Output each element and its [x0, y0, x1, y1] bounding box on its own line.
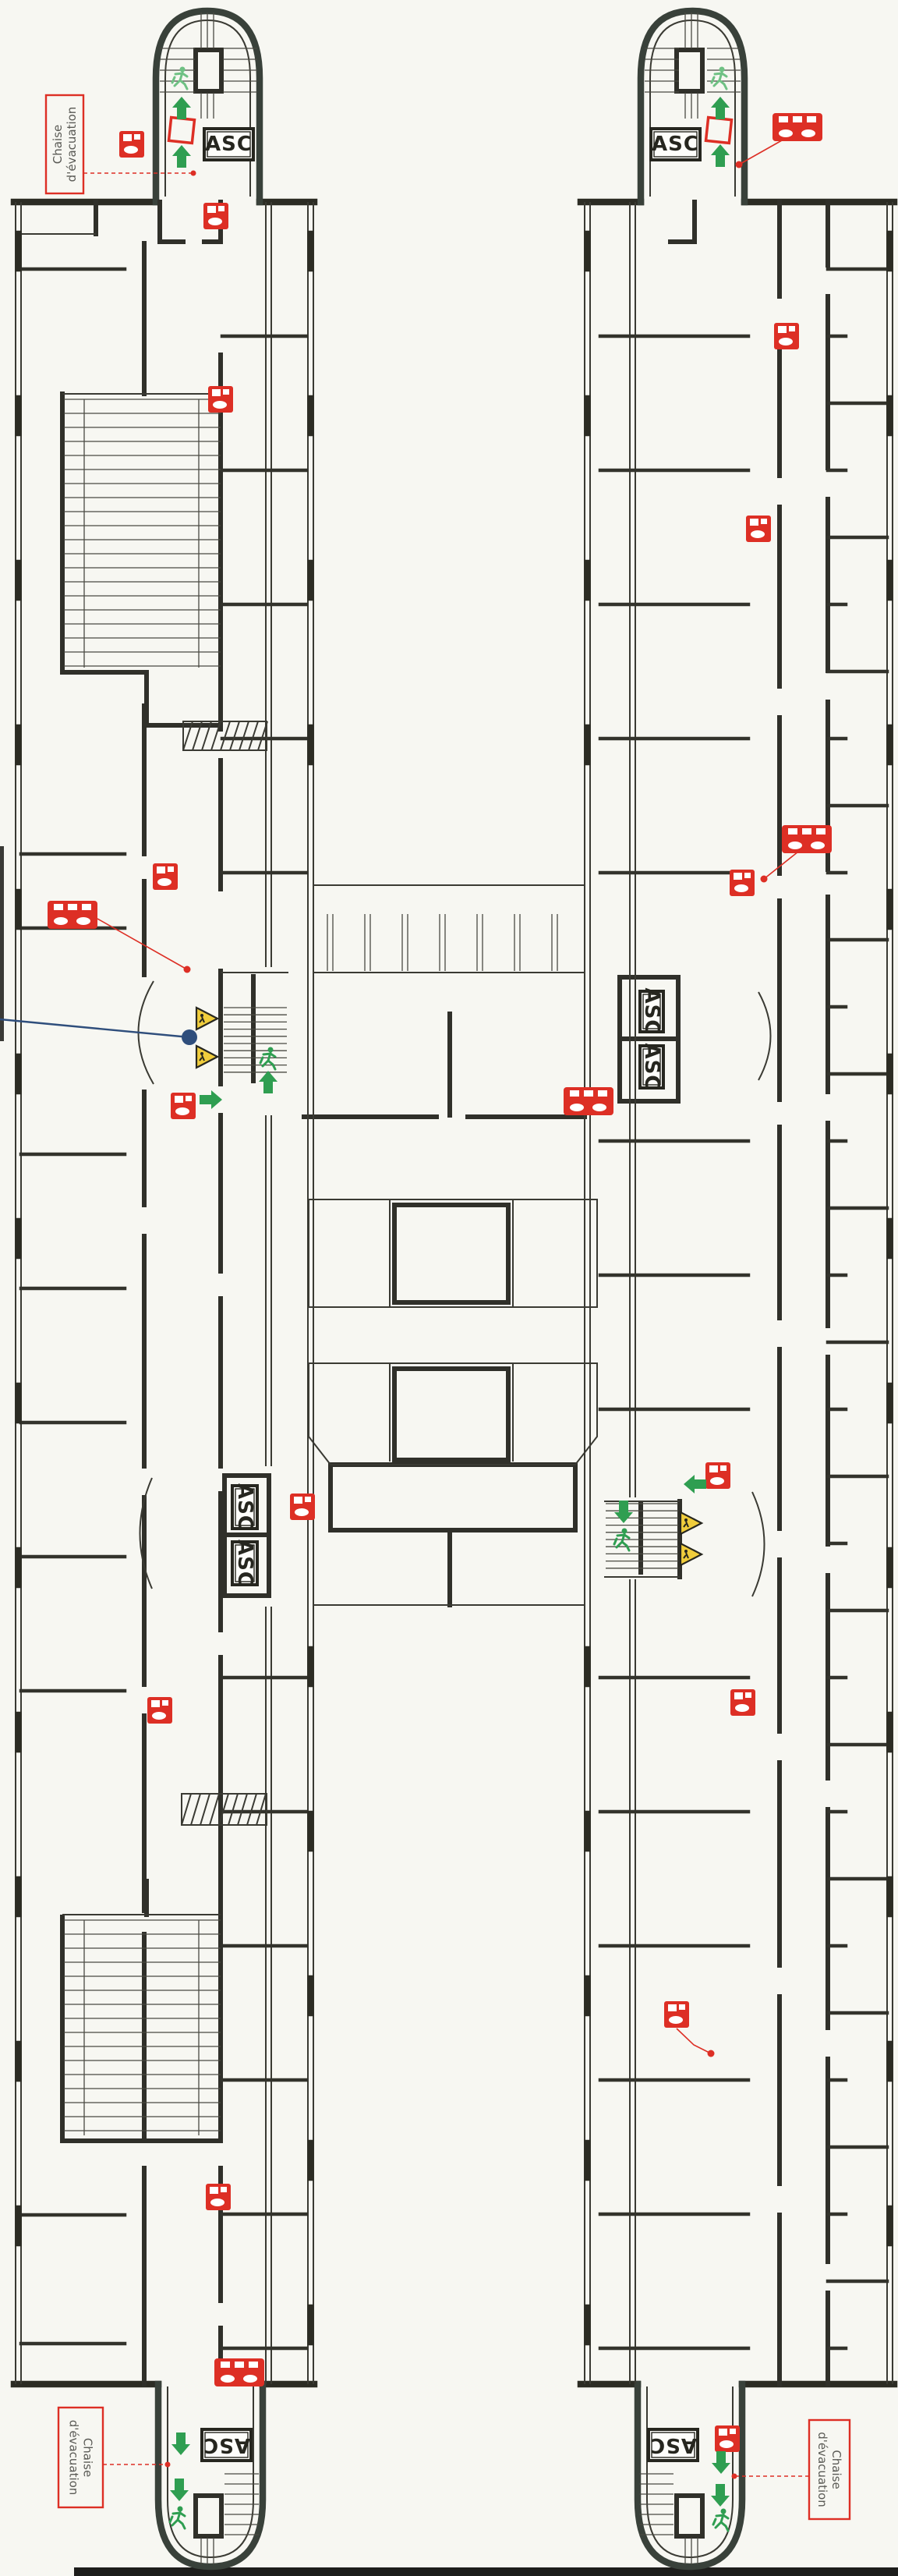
evacuation-arrow-icon [200, 1090, 222, 1109]
evacuation-arrow-icon [712, 2451, 730, 2474]
fire-extinguisher-icon [208, 386, 233, 413]
evacuation-arrow-icon [172, 97, 191, 119]
elevator-asc-box: ASC [649, 2429, 698, 2461]
evacuation-arrow-icon [171, 2432, 190, 2455]
fire-extinguisher-icon [730, 1689, 755, 1716]
blue-pointer-line [0, 1019, 189, 1037]
wall-detail [182, 721, 267, 1825]
leader-line [677, 2029, 711, 2053]
elevator-asc-box: ASC [202, 2429, 251, 2461]
evacuation-arrow-icon [172, 145, 191, 168]
symbols-and-labels: ASCASCASCASCASCASCASCASCChaised'évacuati… [0, 12, 890, 2564]
wall-corridors [62, 50, 828, 2536]
elevator-labels: ASCASCASCASCASCASCASCASC [202, 129, 700, 2461]
evacuation-floor-plan: ASCASCASCASCASCASCASCASCChaised'évacuati… [0, 0, 898, 2576]
svg-text:ASC: ASC [233, 1540, 256, 1587]
leader-dot [191, 171, 196, 176]
svg-text:d'évacuation: d'évacuation [65, 107, 79, 182]
fire-extinguisher-double-icon [772, 113, 822, 141]
evacuation-arrow-icon [684, 1475, 706, 1494]
svg-text:ASC: ASC [233, 1483, 256, 1531]
evacuation-arrow-icon [711, 144, 730, 167]
elevator-asc-box: ASC [640, 988, 663, 1036]
evacuation-arrow-icon [711, 97, 730, 119]
wall-detail [64, 12, 741, 2564]
elevator-asc-box: ASC [204, 129, 253, 160]
leader-dot [736, 161, 743, 168]
fire-extinguisher-icon [664, 2001, 689, 2028]
evacuation-arrow-icon [711, 2484, 730, 2507]
svg-text:ASC: ASC [649, 2433, 697, 2457]
safety-symbols [0, 67, 832, 2532]
leader-dot [184, 966, 191, 973]
svg-text:d'évacuation: d'évacuation [67, 2420, 81, 2496]
fire-extinguisher-icon [705, 1462, 730, 1489]
warning-triangle-icon [681, 1512, 702, 1534]
svg-text:d'évacuation: d'évacuation [815, 2432, 829, 2507]
warning-triangle-icon [196, 1008, 217, 1029]
elevator-asc-box: ASC [640, 1044, 663, 1091]
leader-dot [165, 2462, 171, 2468]
svg-text:Chaise: Chaise [51, 125, 65, 164]
fire-extinguisher-double-icon [782, 825, 832, 853]
warning-triangle-icon [681, 1543, 702, 1565]
wall-facade-lines [16, 20, 893, 2557]
fire-extinguisher-icon [119, 131, 144, 158]
fire-extinguisher-double-icon [48, 901, 97, 929]
fire-extinguisher-icon [147, 1697, 172, 1724]
fire-extinguisher-icon [206, 2184, 231, 2210]
fire-extinguisher-double-icon [214, 2358, 264, 2386]
fire-extinguisher-double-icon [564, 1087, 613, 1115]
leader-dot [732, 2474, 737, 2479]
leader-dot [761, 876, 768, 883]
wall-towers [156, 11, 744, 2567]
exit-running-man-icon [713, 2509, 728, 2532]
walls [14, 11, 894, 2567]
svg-text:ASC: ASC [640, 1044, 663, 1091]
wall-detail [19, 234, 890, 2342]
elevator-asc-box: ASC [651, 129, 700, 160]
elevator-asc-box: ASC [232, 1540, 257, 1587]
fire-extinguisher-icon [171, 1093, 196, 1119]
evac-chair-box: Chaised'évacuation [58, 2408, 171, 2507]
generated-walls [19, 12, 890, 2564]
leader-dot [708, 2050, 715, 2057]
elevator-asc-box: ASC [232, 1483, 257, 1531]
fire-extinguisher-icon [290, 1494, 315, 1520]
svg-text:ASC: ASC [652, 133, 699, 156]
wall-detail [21, 269, 887, 2348]
svg-text:ASC: ASC [640, 988, 663, 1036]
fire-extinguisher-icon [746, 516, 771, 542]
alarm-point-icon [169, 118, 195, 144]
exit-running-man-icon [170, 2507, 185, 2529]
fire-extinguisher-icon [203, 203, 228, 229]
warning-triangle-icon [196, 1046, 217, 1068]
fire-extinguisher-icon [774, 323, 799, 349]
scan-edge-left [0, 846, 4, 1041]
floor-plan-page: ASCASCASCASCASCASCASCASCChaised'évacuati… [0, 0, 898, 2576]
evacuation-arrow-icon [259, 1071, 278, 1093]
fire-extinguisher-icon [715, 2425, 740, 2452]
alarm-point-icon [706, 118, 732, 144]
svg-text:Chaise: Chaise [81, 2438, 95, 2477]
fire-extinguisher-icon [730, 870, 755, 896]
fire-extinguisher-icon [153, 863, 178, 890]
svg-text:ASC: ASC [205, 133, 253, 156]
svg-text:ASC: ASC [203, 2433, 250, 2457]
evacuation-arrow-icon [170, 2479, 189, 2501]
svg-text:Chaise: Chaise [829, 2450, 843, 2489]
evac-chair-box: Chaised'évacuation [732, 2420, 850, 2519]
blue-pointer-dot [182, 1029, 197, 1045]
